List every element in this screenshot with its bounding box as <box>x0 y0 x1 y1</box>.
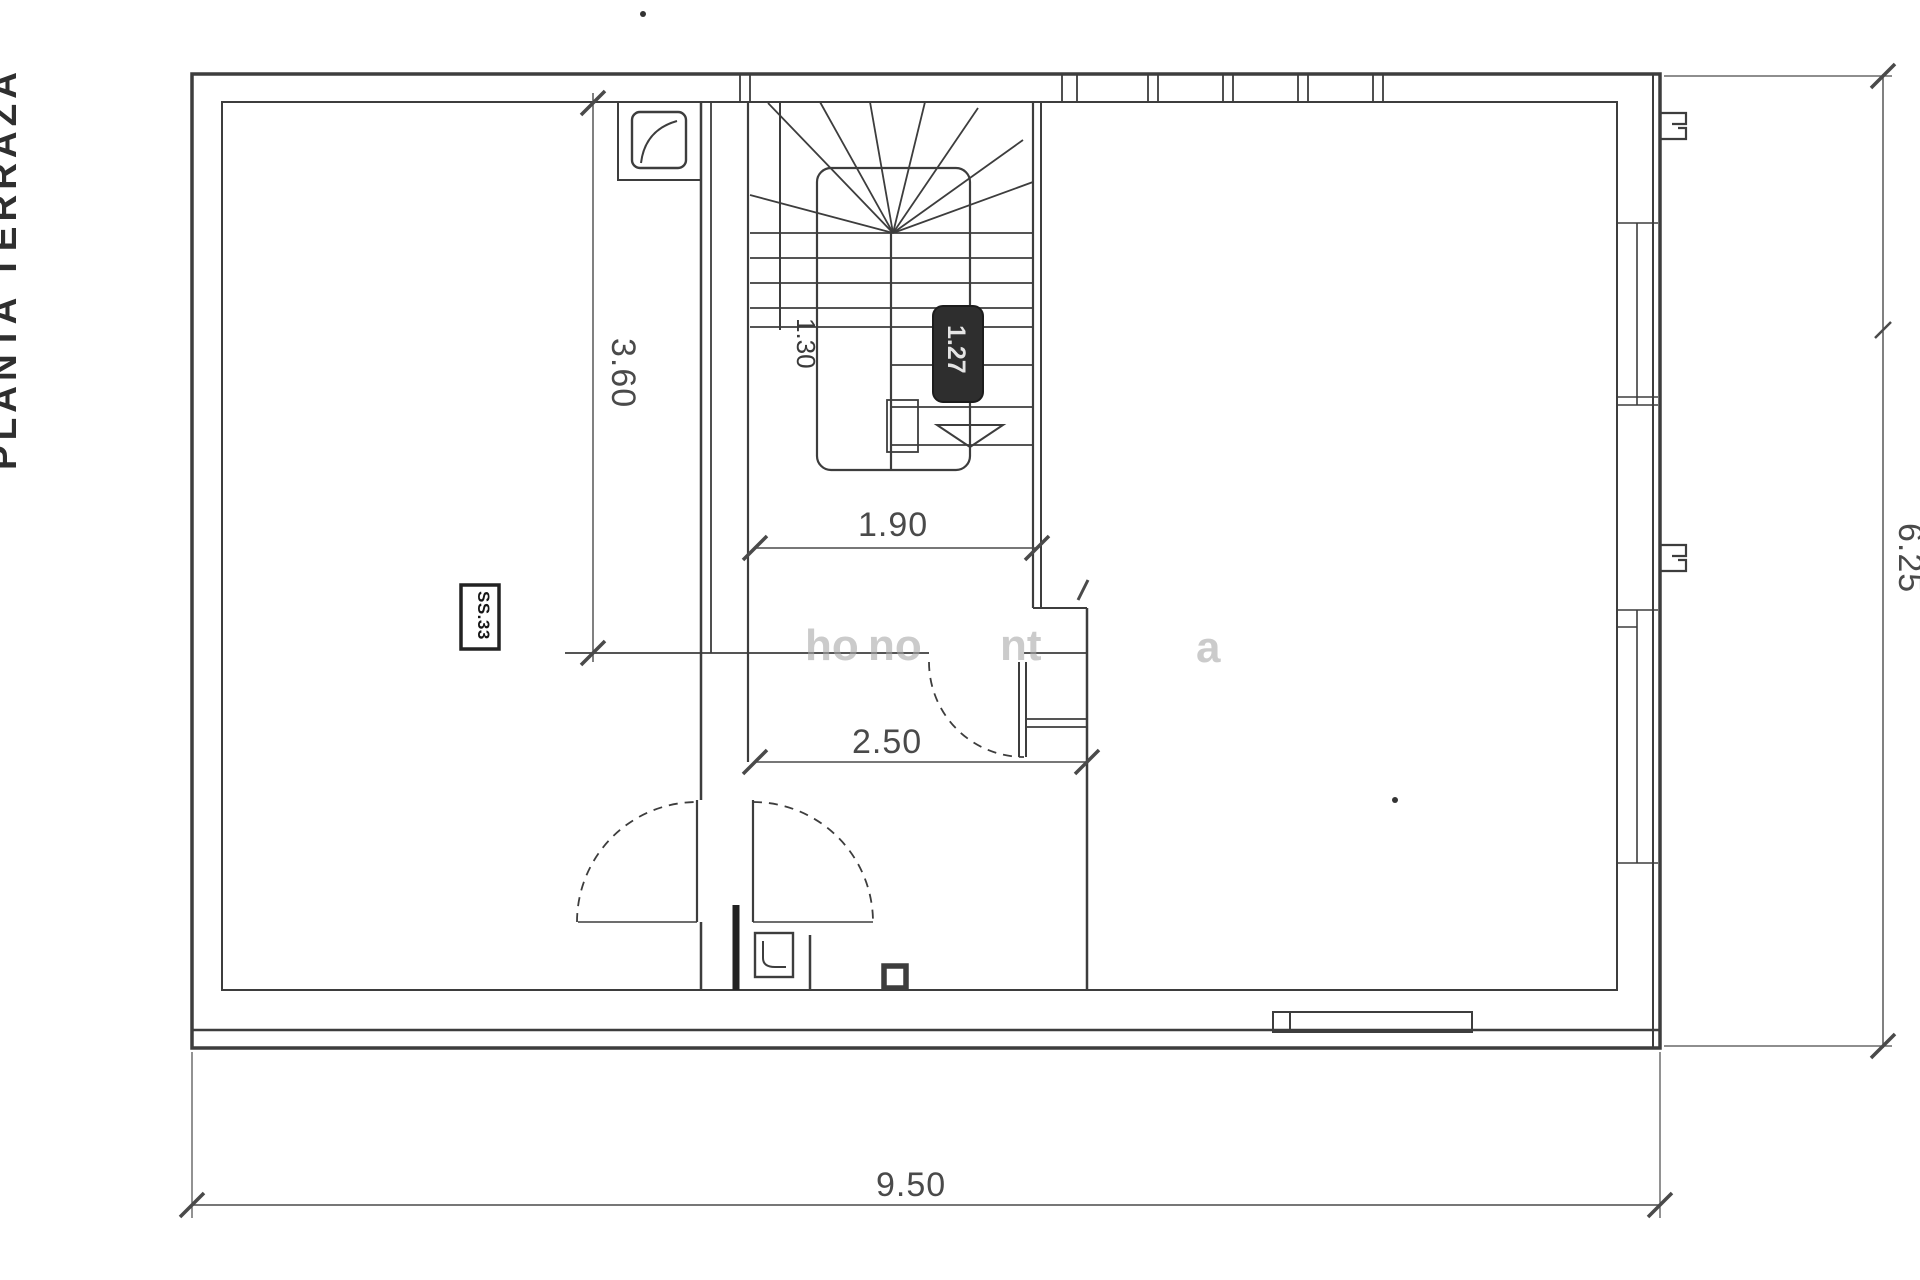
double-door <box>577 800 873 922</box>
stair-flight-label: 1.30 <box>791 318 821 369</box>
sink-counter <box>618 102 701 180</box>
dim-label-1-90: 1.90 <box>858 506 928 544</box>
dim-hall-width: 2.50 <box>743 723 1099 774</box>
watermark-fragment: no <box>868 621 922 670</box>
stair-badge: 1.27 <box>933 306 983 402</box>
floor-plan-svg: PLANTA TERRAZA <box>0 0 1920 1280</box>
watermark-fragment: nt <box>1000 621 1042 670</box>
room-badge-label: SS.33 <box>474 591 493 640</box>
dim-total-height: 6.25 <box>1664 64 1920 1058</box>
sink-basin <box>632 112 686 168</box>
stair-badge-label: 1.27 <box>942 325 970 374</box>
watermark: ho no nt a <box>805 621 1221 672</box>
scan-dot-top <box>640 11 646 17</box>
sink-tap-icon <box>641 121 677 163</box>
top-wall-mullions <box>740 74 1383 102</box>
dim-label-2-50: 2.50 <box>852 723 922 761</box>
wall-clip-icons <box>1660 113 1686 571</box>
shower-fixture <box>755 933 793 977</box>
dim-total-width: 9.50 <box>180 1052 1672 1218</box>
watermark-fragment: a <box>1196 623 1221 672</box>
door-swing-right <box>753 802 873 922</box>
dim-label-3-60: 3.60 <box>604 338 642 408</box>
floor-plan-page: PLANTA TERRAZA <box>0 0 1920 1280</box>
scan-dot-room <box>1392 797 1398 803</box>
dim-hall-depth: 3.60 <box>581 91 642 665</box>
stair <box>750 102 1033 470</box>
room-badge: SS.33 <box>461 585 499 649</box>
floor-drain <box>884 966 906 988</box>
plan-side-label: PLANTA TERRAZA <box>0 67 24 470</box>
room-door-swing <box>929 662 1024 757</box>
room-door <box>929 662 1026 757</box>
dim-stair-width: 1.90 <box>743 506 1088 600</box>
watermark-fragment: ho <box>805 621 859 670</box>
right-wall-windows <box>1617 223 1658 863</box>
interior-walls <box>565 102 1087 990</box>
dim-label-9-50: 9.50 <box>876 1166 946 1204</box>
door-swing-left <box>577 802 697 922</box>
dim-label-6-25: 6.25 <box>1891 523 1920 593</box>
